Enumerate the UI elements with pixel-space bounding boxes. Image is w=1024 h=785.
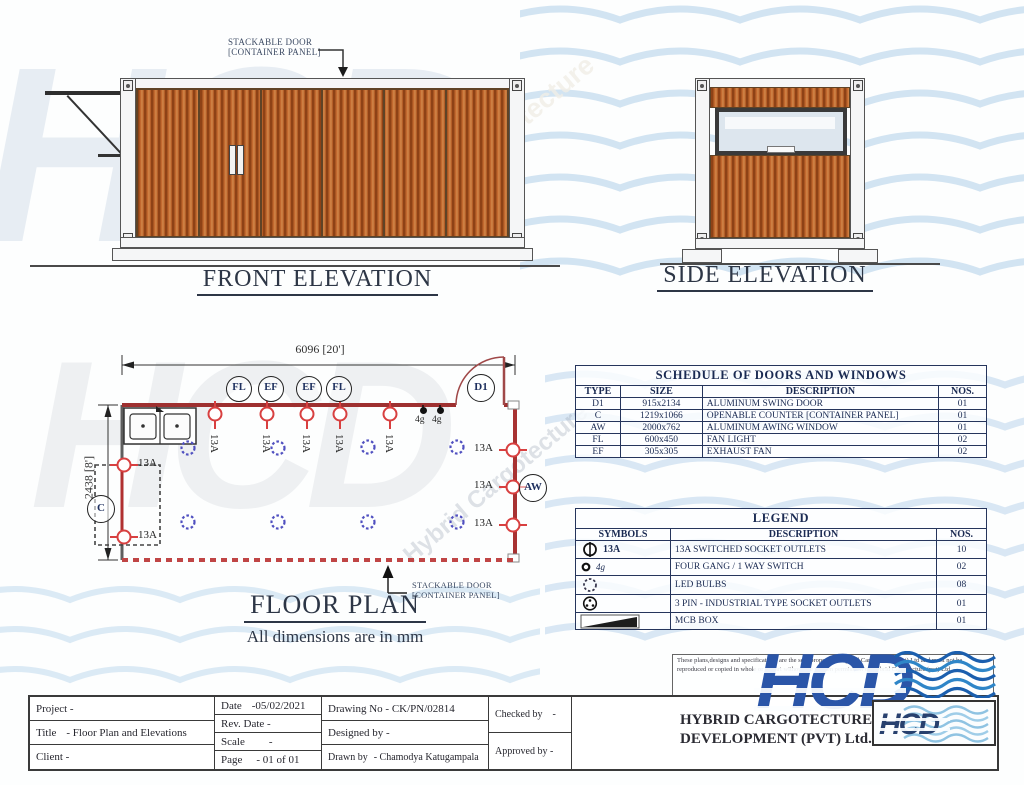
legend-row: 13A13A SWITCHED SOCKET OUTLETS10 <box>576 541 987 559</box>
led-bulb-symbol <box>448 513 466 536</box>
socket-label: 13A <box>300 434 312 453</box>
legend-col-symbols: SYMBOLS <box>576 529 671 541</box>
schedule-row: C1219x1066OPENABLE COUNTER [CONTAINER PA… <box>576 410 987 422</box>
legend-col-description: DESCRIPTION <box>670 529 936 541</box>
legend-nos: 10 <box>937 541 987 559</box>
page-value: - 01 of 01 <box>256 754 299 766</box>
legend-row: 3 PIN - INDUSTRIAL TYPE SOCKET OUTLETS01 <box>576 595 987 613</box>
corner-casting <box>853 80 863 91</box>
window-glass-highlight <box>725 117 835 129</box>
front-bottom-rail <box>120 237 525 248</box>
socket-outlet-symbol <box>381 399 399 436</box>
ceiling-tag-fl: FL <box>226 376 252 402</box>
led-bulb-symbol <box>359 438 377 461</box>
corner-casting <box>697 80 707 91</box>
led-bulb-symbol <box>179 439 197 462</box>
legend-row: 4gFOUR GANG / 1 WAY SWITCH02 <box>576 559 987 576</box>
legend-nos: 08 <box>937 576 987 595</box>
socket-label: 13A <box>208 434 220 453</box>
schedule-col-description: DESCRIPTION <box>702 386 938 398</box>
date-value: -05/02/2021 <box>252 700 306 712</box>
schedule-cell: 915x2134 <box>620 398 702 410</box>
schedule-cell: 600x450 <box>620 434 702 446</box>
legend-header-row: SYMBOLS DESCRIPTION NOS. <box>576 529 987 541</box>
side-foot-right <box>838 249 878 263</box>
canopy-strut <box>67 95 125 157</box>
drawn-by-value: - Chamodya Katugampala <box>374 752 479 763</box>
page-label: Page <box>221 754 242 766</box>
socket-outlet-symbol <box>497 441 529 464</box>
industrial-socket-symbol <box>576 595 671 613</box>
socket-outlet-symbol <box>206 399 224 436</box>
schedule-cell: 01 <box>939 422 987 434</box>
schedule-cell: 2000x762 <box>620 422 702 434</box>
switch-symbol <box>420 407 427 414</box>
schedule-cell: AW <box>576 422 621 434</box>
socket-outlet-symbol <box>108 456 140 479</box>
schedule-cell: 1219x1066 <box>620 410 702 422</box>
schedule-row: EF305x305EXHAUST FAN02 <box>576 446 987 458</box>
schedule-cell: D1 <box>576 398 621 410</box>
container-panel <box>137 89 199 237</box>
schedule-cell: EXHAUST FAN <box>702 446 938 458</box>
schedule-row: AW2000x762ALUMINUM AWING WINDOW01 <box>576 422 987 434</box>
switch-label: 4g <box>432 415 442 425</box>
schedule-cell: OPENABLE COUNTER [CONTAINER PANEL] <box>702 410 938 422</box>
schedule-cell: EF <box>576 446 621 458</box>
side-elevation-drawing <box>660 65 940 280</box>
title-block-project-section: Project - Title - Floor Plan and Elevati… <box>30 697 215 769</box>
schedule-cell: ALUMINUM AWING WINDOW <box>702 422 938 434</box>
drawn-by-label: Drawn by <box>328 752 368 763</box>
title-block-drawing-section: Drawing No - CK/PN/02814 Designed by - D… <box>322 697 489 769</box>
legend-description: LED BULBS <box>670 576 936 595</box>
schedule-header-row: TYPE SIZE DESCRIPTION NOS. <box>576 386 987 398</box>
container-panel <box>384 89 446 237</box>
rev-date-label: Rev. Date - <box>221 718 271 730</box>
legend-row: MCB BOX01 <box>576 613 987 630</box>
container-panel <box>446 89 508 237</box>
logo-stripe <box>878 718 950 721</box>
logo-stripe <box>754 706 872 711</box>
led-bulb-icon <box>580 576 666 594</box>
led-bulb-symbol <box>359 513 377 536</box>
legend-nos: 01 <box>937 595 987 613</box>
led-bulb-symbol <box>269 513 287 536</box>
side-upper-panel <box>710 87 850 108</box>
led-bulb-symbol <box>179 513 197 536</box>
legend-col-nos: NOS. <box>937 529 987 541</box>
legend-nos: 01 <box>937 613 987 630</box>
front-base-skid <box>112 248 533 261</box>
switch-symbol <box>437 407 444 414</box>
logo-stripe <box>878 728 950 731</box>
company-name-line2: DEVELOPMENT (PVT) Ltd. <box>680 730 872 749</box>
socket-outlet-symbol <box>497 516 529 539</box>
schedule-cell: FAN LIGHT <box>702 434 938 446</box>
schedule-cell: 02 <box>939 446 987 458</box>
front-elevation-title: FRONT ELEVATION <box>150 266 485 293</box>
schedule-table-title: SCHEDULE OF DOORS AND WINDOWS <box>576 366 987 386</box>
client-label: Client - <box>36 751 69 763</box>
schedule-cell: 305x305 <box>620 446 702 458</box>
counter-tag-c: C <box>87 495 115 523</box>
front-panels <box>136 88 509 238</box>
socket-label: 13A <box>138 529 178 541</box>
logo-stripe <box>754 668 906 673</box>
designed-by: Designed by - <box>328 727 390 739</box>
schedule-cell: 02 <box>939 434 987 446</box>
ceiling-tag-fl: FL <box>326 376 352 402</box>
title-block-date-section: Date -05/02/2021 Rev. Date - Scale - Pag… <box>215 697 322 769</box>
ceiling-tag-ef: EF <box>296 376 322 402</box>
led-bulb-symbol <box>576 576 671 595</box>
schedule-cell: C <box>576 410 621 422</box>
schedule-col-size: SIZE <box>620 386 702 398</box>
floor-plan-subtitle: All dimensions are in mm <box>200 627 470 647</box>
checked-by-value: - <box>553 709 556 720</box>
legend-table: LEGEND SYMBOLS DESCRIPTION NOS. 13A13A S… <box>575 508 987 630</box>
awning-window <box>715 108 847 155</box>
mcb-box-symbol <box>576 613 671 630</box>
switch-label: 4g <box>415 415 425 425</box>
checked-by-label: Checked by <box>495 709 543 720</box>
legend-description: MCB BOX <box>670 613 936 630</box>
plan-width-dimension: 6096 [20'] <box>240 342 400 357</box>
schedule-cell: 01 <box>939 398 987 410</box>
socket-outlet-symbol <box>108 528 140 551</box>
door-handle-left <box>229 145 236 175</box>
socket-label: 13A <box>453 479 493 491</box>
led-bulb-symbol <box>448 438 466 461</box>
door-handle-right <box>237 145 244 175</box>
socket-outlet-symbol <box>298 399 316 436</box>
mcb-box-icon <box>580 613 666 629</box>
front-left-post <box>120 78 136 248</box>
schedule-col-type: TYPE <box>576 386 621 398</box>
floor-plan-title: FLOOR PLAN <box>215 590 455 620</box>
side-bottom-rail <box>695 238 865 249</box>
title-block-approval-section: Checked by - Approved by - <box>489 697 572 769</box>
legend-description: FOUR GANG / 1 WAY SWITCH <box>670 559 936 576</box>
logo-waves-icon <box>893 651 997 698</box>
legend-row: LED BULBS08 <box>576 576 987 595</box>
side-elevation-title: SIDE ELEVATION <box>640 262 890 289</box>
scale-value: - <box>269 736 273 748</box>
project-label: Project - <box>36 703 74 715</box>
legend-table-title: LEGEND <box>576 509 987 529</box>
legend-nos: 02 <box>937 559 987 576</box>
title-label: Title <box>36 727 56 739</box>
corner-casting <box>512 80 522 91</box>
side-right-post <box>850 78 865 248</box>
schedule-row: FL600x450FAN LIGHT02 <box>576 434 987 446</box>
container-panel <box>322 89 384 237</box>
title-value: - Floor Plan and Elevations <box>66 727 186 739</box>
front-elevation-drawing <box>30 70 560 275</box>
approved-by-label: Approved by - <box>495 746 553 757</box>
logo-stripe <box>754 688 906 693</box>
legend-description: 3 PIN - INDUSTRIAL TYPE SOCKET OUTLETS <box>670 595 936 613</box>
schedule-col-nos: NOS. <box>939 386 987 398</box>
switch-symbol: 4g <box>576 559 671 576</box>
date-label: Date <box>221 700 242 712</box>
socket-outlet-symbol <box>331 399 349 436</box>
led-bulb-symbol <box>269 439 287 462</box>
socket-outlet-symbol: 13A <box>576 541 671 559</box>
socket-outlet-icon: 13A <box>580 541 666 558</box>
canopy-bar <box>45 91 125 95</box>
schedule-row: D1915x2134ALUMINUM SWING DOOR01 <box>576 398 987 410</box>
side-lower-panel <box>710 155 850 238</box>
socket-label: 13A <box>138 457 178 469</box>
schedule-cell: FL <box>576 434 621 446</box>
socket-label: 13A <box>333 434 345 453</box>
front-right-post <box>509 78 525 248</box>
schedule-of-doors-and-windows-table: SCHEDULE OF DOORS AND WINDOWS TYPE SIZE … <box>575 365 987 458</box>
drawing-no: Drawing No - CK/PN/02814 <box>328 703 455 715</box>
logo-box-text: HCD <box>879 708 938 742</box>
window-handle <box>767 146 795 153</box>
container-panel <box>261 89 323 237</box>
socket-label: 13A <box>383 434 395 453</box>
schedule-cell: ALUMINUM SWING DOOR <box>702 398 938 410</box>
side-left-post <box>695 78 710 248</box>
door-tag-d1: D1 <box>467 374 495 402</box>
floor-plan-drawing: 6096 [20'] 2438 [8'] D1 C AW 13A13A13A13… <box>60 340 560 650</box>
ceiling-tag-ef: EF <box>258 376 284 402</box>
window-tag-aw: AW <box>519 474 547 502</box>
front-door-arrow <box>300 42 360 80</box>
drawing-sheet: HCD HCD Hybrid Cargotecture Hybrid Cargo… <box>0 0 1024 785</box>
industrial-socket-icon <box>580 595 666 612</box>
legend-description: 13A SWITCHED SOCKET OUTLETS <box>670 541 936 559</box>
switch-icon: 4g <box>580 559 666 575</box>
scale-label: Scale <box>221 736 245 748</box>
hcd-boxed-logo: HCD <box>872 700 996 746</box>
corner-casting <box>123 80 133 91</box>
schedule-cell: 01 <box>939 410 987 422</box>
socket-outlet-symbol <box>258 399 276 436</box>
side-foot-left <box>682 249 722 263</box>
